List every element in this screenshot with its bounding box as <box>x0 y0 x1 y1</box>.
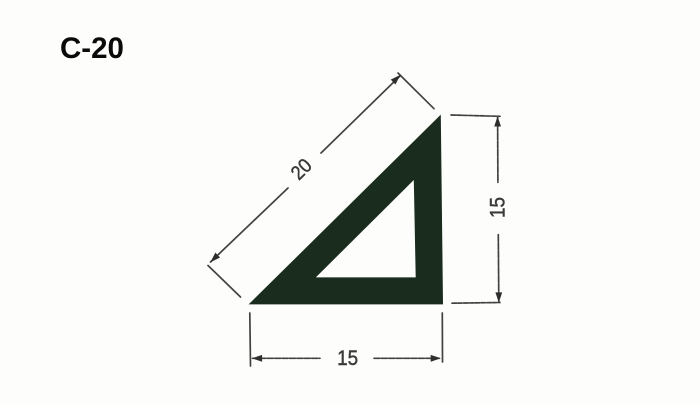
svg-text:15: 15 <box>337 347 358 370</box>
svg-text:15: 15 <box>487 197 510 218</box>
svg-text:C-20: C-20 <box>60 32 124 65</box>
